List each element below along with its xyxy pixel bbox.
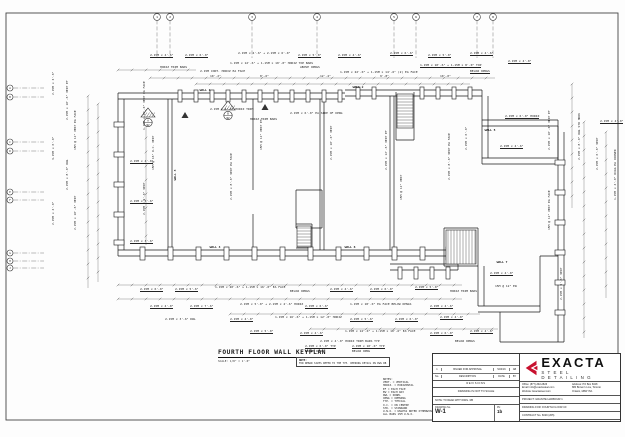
rebar-callout: 2-15M x 4'-0" <box>230 318 253 322</box>
rebar-callout: 2-15M x 3'-6" <box>130 240 153 244</box>
rebar-callout: 2-15M x 4'-6" <box>338 54 361 58</box>
title-block: 1 ISSUED FOR APPROVAL 5/24/16 AB No. DES… <box>432 353 621 422</box>
rebar-callout: 2-15M x 4'-0" <box>150 305 173 309</box>
rebar-callout: 2-15M x 4'-6" <box>470 330 493 334</box>
rebar-callout: 2-15M x 5'-6" VERT <box>560 267 563 300</box>
rebar-callout: 1-15M x 12'-0" VERT EA FACE <box>143 81 146 130</box>
revision-header-row: No. DESCRIPTION DATE BY <box>433 373 519 381</box>
rebar-callout: 2-15M x 4'-6" <box>500 145 523 149</box>
rebar-callout: 2-15M x 4'-6" <box>430 305 453 309</box>
rebar-callout: 2-15M x 5'-0" + 2-15M x 4'-6" HORIZ <box>240 303 303 306</box>
exacta-chevron-icon <box>523 359 538 377</box>
rebar-callout: 2-15M x 8'-0" DWL <box>66 159 69 190</box>
rebar-callout: 2-15M x 3'-6" <box>52 72 55 95</box>
note-text: FOR REBAR SIZES REFER TO THE TYP. OPENIN… <box>299 362 387 365</box>
rebar-callout: 2-15M x 6'-0" <box>370 288 393 292</box>
rebar-callout: HORIZ TRIM BARS <box>160 66 187 69</box>
customer-name: CUSTOMER: ONTARIO REBAR INC. <box>520 420 620 421</box>
logo-wordmark: EXACTA <box>541 356 620 369</box>
rebar-callout: 2-15M x 4'-6" <box>470 52 493 56</box>
rebar-callout: 10'-2" <box>210 75 221 78</box>
contact-website: Website: Exactasteel.com <box>522 390 568 393</box>
rebar-callout: 2-15M x 8'-0" DWL STD HOOK <box>578 113 581 160</box>
rebar-callout: 2-15M x 4'-6" <box>300 332 323 336</box>
rebar-callout: 1-15M x 4'-0" DIAG EA CORNER <box>614 149 617 200</box>
rebar-callout: 10'-0" <box>440 75 451 78</box>
rebar-callout: 2-15M x 4'-0" <box>52 202 55 225</box>
drawing-for: DRAWING FOR: FOURTH FLOOR CF <box>520 404 620 412</box>
rebar-callout: 15M @ 12" VERT EA FACE <box>548 190 551 230</box>
rev-header-by: BY <box>510 375 519 378</box>
rebar-callout: 2-15M x 6'-0" <box>430 332 453 336</box>
rebar-callout: BELOW OPNGS <box>470 70 490 74</box>
rev-header-date: DATE <box>494 375 510 378</box>
drawing-sheet: 12345678ABCDEFGHJAW2BW2WALL 1WALL 2WALL … <box>0 0 625 437</box>
logo-tagline: STEEL DETAILING <box>541 370 620 380</box>
rebar-callout: 15M @ 12" VERT <box>400 175 403 200</box>
revision-table: 1 ISSUED FOR APPROVAL 5/24/16 AB No. DES… <box>433 354 520 421</box>
rebar-callout: BELOW OPNGS <box>455 340 475 343</box>
rebar-callout: 12'-4" <box>320 75 331 78</box>
rebar-callout: 2-15M x 4'-6" + 2-15M x 6'-0" <box>238 52 290 55</box>
rebar-callout: 2-15M x 4'-0" HORIZ TRIM BARS TYP <box>320 340 380 343</box>
rebar-callout: 2-15M x 6'-0" <box>185 54 208 58</box>
rebar-callout: 2-15M x 8'-6" VERT EA FACE <box>230 153 233 200</box>
rebar-callout: HORIZ TRIM BARS <box>250 118 277 121</box>
rebar-callout: 2-15M x 5'-0" <box>250 330 273 334</box>
rebar-callout: 1-15M x 16'-6" + 1-15M x 12'-0" HORIZ <box>275 316 342 319</box>
rebar-callout: 2-15M x 10'-0" VERT <box>330 126 333 160</box>
rebar-callout: 2-15M CONT. HORIZ EA FACE <box>200 70 245 73</box>
rebar-callout: 2-15M x 4'-6" HORIZ TRIM <box>210 108 253 111</box>
project-name: PROJECT: GRANITE HARBOUR 1 <box>520 396 620 404</box>
rebar-callout: 2-15M x 6'-0" <box>465 127 468 150</box>
rebar-callout: 2-15M x 5'-0" <box>298 54 321 58</box>
rebar-callout: 3-15M x 6'-0" <box>52 137 55 160</box>
rev-no: 1 <box>433 368 442 371</box>
rebar-callout: 2-15M x 7'-6" <box>190 305 213 309</box>
rebar-callout: BELOW OPNG <box>352 350 370 353</box>
rebar-callout: 1-15M x 10'-6" + 1-15M x 8'-0" TOP <box>420 64 481 68</box>
rev-desc: ISSUED FOR APPROVAL <box>442 368 494 371</box>
not-to-scale-note: DRAWING IS NOT TO SCALE <box>433 388 519 397</box>
read-with-note: NOTE: TO READ WITH DWG. RB <box>433 397 519 405</box>
rev-date: 5/24/16 <box>494 368 510 371</box>
rebar-callout: 2-15M x 4'-0" <box>490 272 513 276</box>
rev-by: AB <box>510 368 519 371</box>
legend-line: ALL BARS 15M U.N.O. <box>383 413 435 416</box>
rebar-callout: 1-15M x 22'-0" + 1-15M x 14'-6" (2) EA F… <box>340 71 418 74</box>
rebar-callout: 15M @ 12" VERT EF <box>260 119 263 150</box>
drawing-number-cell: DRAWING No. W-1 <box>433 405 495 421</box>
revision-value: 1b <box>497 409 517 414</box>
abbreviation-legend: NOTES:VERT. = VERTICALHORIZ. = HORIZONTA… <box>383 378 435 416</box>
rebar-callout: 2-15M x 6'-6" <box>390 52 413 56</box>
rebar-callout: BELOW OPNGS <box>290 290 310 293</box>
contact-info: Office: (877)-392-2826 Email: info@exact… <box>520 382 620 396</box>
rebar-callout: 2-15M x 3'-6" DWL <box>165 318 196 321</box>
drawing-scale: SCALE: 1/8" = 1'-0" <box>218 359 250 363</box>
rebar-callout: 2-15M x 5'-6" <box>350 318 373 322</box>
rebar-callout: 2-15M x 4'-0" <box>600 120 623 124</box>
rebar-callout: 2-15M x 10'-6" VERT EF <box>66 80 69 120</box>
rebar-callout: 2-15M x 4'-0" <box>440 316 463 320</box>
rebar-callout: 2-15M x 5'-6" <box>175 288 198 292</box>
rebar-callout: 1-15M x 20'-6" + 1-15M x 16'-0" EA FACE <box>215 286 285 289</box>
rebar-callout: 2-15M x 6'-0" HORIZ <box>505 115 539 119</box>
rebar-callout: 8'-6" <box>260 75 269 78</box>
revision-cell: RV. 1b <box>495 405 519 421</box>
drawing-number-value: W-1 <box>435 409 492 415</box>
rebar-callout: 9'-8" <box>380 75 389 78</box>
rebar-callout: 2-15M x 6'-6" VERT <box>596 137 599 170</box>
rebar-callout: 2-15M x 5'-6" <box>130 200 153 204</box>
rebar-callout: 1-15M x 18'-0" EA FACE BELOW OPNGS <box>350 303 411 306</box>
rebar-callout: 2-15M x 4'-0" <box>508 60 531 64</box>
company-logo: EXACTA STEEL DETAILING <box>520 354 620 382</box>
rebar-callout: 15M @ 12" EW <box>495 285 517 288</box>
rebar-callout: 2-15M x 5'-0" <box>428 54 451 58</box>
rebar-callout: 1-15M x 14'-0" + 1-15M x 10'-6" EA FACE <box>345 330 415 333</box>
rebar-callout: 2-15M x 10'-0" VERT EF <box>548 110 551 150</box>
rebar-callout: 2-15M x 4'-6" <box>150 54 173 58</box>
rebar-callout: 2-15M x 6'-0" <box>140 288 163 292</box>
rebar-callout: 2-15M x 6'-0" EA SIDE OF OPNG <box>290 112 342 115</box>
rebar-callout: 2-15M x 8'-6" VERT EA FACE <box>448 133 451 180</box>
rebar-callout: HORIZ TRIM BARS <box>450 290 477 293</box>
rebar-callout: 2-15M x 5'-0" <box>415 286 438 290</box>
rebar-callout: 15M @ 16" O.C. VERT <box>152 136 155 170</box>
rebar-callout: 15M @ 12" VERT EA FACE <box>74 110 77 150</box>
revision-row: 1 ISSUED FOR APPROVAL 5/24/16 AB <box>433 365 519 373</box>
contract-number: CONTRACT No. 6029 (205) <box>520 412 620 420</box>
note-box: NOTE: FOR REBAR SIZES REFER TO THE TYP. … <box>296 357 390 367</box>
revisions-label: REVISIONS <box>433 381 519 388</box>
rebar-callout: 2-15M x 6'-0" <box>395 318 418 322</box>
rebar-callout: ABOVE OPNGS <box>300 66 320 69</box>
rebar-callout: 2-15M x 10'-6" VERT <box>74 196 77 230</box>
contact-address3: Ontario, M8W 3V1 <box>572 390 618 393</box>
rebar-callout: 2-15M x 6'-6" <box>305 305 328 309</box>
rev-header-no: No. <box>433 375 442 378</box>
rebar-callout: 2-15M x 12'-6" VERT EF <box>385 130 388 170</box>
rebar-callout: 2-15M x 4'-6" <box>330 288 353 292</box>
rebar-callout: 2-15M x 4'-0" <box>130 160 153 164</box>
rev-header-desc: DESCRIPTION <box>442 375 494 378</box>
